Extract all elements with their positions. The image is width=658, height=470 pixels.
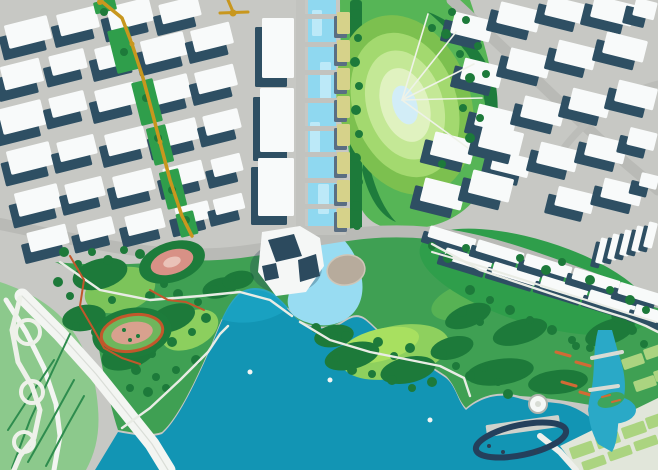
skywalk-node [230, 10, 237, 17]
canal-rowhouses [337, 124, 350, 146]
pocket-park-tree [100, 8, 108, 16]
canal-rowhouses [337, 180, 350, 202]
park-tree [131, 365, 141, 375]
east-park-tree [462, 244, 470, 252]
east-park-tree [457, 307, 467, 317]
park-tree [135, 249, 145, 259]
great-lawn-tree [465, 133, 475, 143]
great-lawn-tree [441, 29, 451, 39]
canal-exhibition-halls [262, 18, 294, 78]
park-tree [228, 274, 236, 282]
canal-ripple [320, 62, 331, 100]
park-tree [59, 247, 69, 257]
park-tree [194, 298, 202, 306]
canal-ripple [318, 184, 329, 214]
east-park-tree [586, 344, 594, 352]
headland-tree [437, 349, 447, 359]
canal-rowhouses [337, 208, 350, 228]
headland-tree [494, 378, 502, 386]
great-lawn-tree [459, 104, 467, 112]
canal-rowhouses [337, 12, 350, 34]
park-tree [143, 387, 153, 397]
park-tree [172, 366, 180, 374]
headland-tree [347, 365, 357, 375]
canal-bank-tree [353, 222, 361, 230]
great-lawn-tree [456, 50, 464, 58]
great-lawn-tree [448, 8, 456, 16]
boat [428, 418, 433, 423]
headland-tree [373, 337, 383, 347]
great-lawn-tree [482, 70, 490, 78]
canal-bank-tree [351, 9, 361, 19]
east-park-tree [627, 325, 637, 335]
cultural-center-roof [262, 263, 279, 281]
canal-bank-tree [354, 34, 362, 42]
east-park-tree [486, 296, 494, 304]
headland-tree [332, 354, 340, 362]
east-park-tree [558, 258, 566, 266]
park-tree [66, 292, 74, 300]
headland-tree [368, 370, 376, 378]
headland-tree [387, 375, 397, 385]
headland-tree [341, 331, 351, 341]
canal-bank-tree [350, 57, 360, 67]
masterplan-svg [0, 0, 658, 470]
canal-rowhouses [337, 68, 350, 90]
skywalk-node [130, 42, 135, 47]
boat [328, 378, 333, 383]
headland-tree [405, 343, 415, 353]
east-park-tree [465, 285, 475, 295]
east-park-tree [476, 318, 484, 326]
headland-tree [503, 389, 513, 399]
canal-ripple [312, 10, 322, 36]
canal-bank-tree [355, 82, 363, 90]
canal-bank-tree [351, 153, 361, 163]
park-tree [72, 322, 80, 330]
pier-pavilion-dot [487, 444, 491, 448]
headland-tree [427, 377, 437, 387]
great-lawn-tree [438, 160, 446, 168]
headland-tree [480, 364, 488, 372]
headland-tree [330, 332, 338, 340]
east-park-tree [585, 275, 595, 285]
east-park-tree [526, 316, 534, 324]
east-park-tree [505, 305, 515, 315]
great-lawn-tree [476, 114, 484, 122]
east-park-tree [642, 306, 650, 314]
east-park-tree [625, 295, 635, 305]
headland-tree [408, 384, 416, 392]
pier-pavilion-dot [549, 444, 553, 448]
park-tree [88, 248, 96, 256]
east-park-tree [606, 286, 614, 294]
canal-bank-tree [351, 105, 361, 115]
east-park-tree [640, 340, 648, 348]
canal-bank-tree [355, 178, 363, 186]
garden-oval-tree [122, 328, 126, 332]
canal-rowhouses [337, 152, 350, 174]
canal-rowhouses [337, 40, 350, 62]
east-park-tree [572, 342, 580, 350]
east-park-tree [541, 265, 551, 275]
park-tree [108, 296, 116, 304]
great-lawn-tree [428, 24, 436, 32]
headland-tree [452, 362, 460, 370]
park-tree [152, 373, 160, 381]
park-tree [103, 255, 113, 265]
garden-oval-tree [136, 334, 140, 338]
pocket-park-tree [120, 48, 128, 56]
canal-exhibition-halls [258, 158, 294, 216]
park-tree [126, 384, 134, 392]
canal-bank-tree [355, 130, 363, 138]
great-lawn-tree [465, 73, 475, 83]
garden-oval-tree [128, 338, 132, 342]
canal-rowhouses [337, 96, 350, 118]
east-park-tree [516, 254, 524, 262]
park-tree [201, 313, 211, 323]
pier-pavilion-dot [534, 450, 538, 454]
pier-pavilion-dot [501, 450, 505, 454]
east-park-tree [547, 325, 557, 335]
great-lawn-tree [474, 42, 482, 50]
park-tree [53, 277, 63, 287]
park-tree [188, 328, 196, 336]
canal-bank-tree [351, 201, 361, 211]
boat [248, 370, 253, 375]
headland-tree [465, 371, 475, 381]
skywalk-node [158, 140, 163, 145]
great-lawn-tree [462, 16, 470, 24]
park-tree [120, 246, 128, 254]
canal-exhibition-halls [260, 88, 294, 152]
masterplan-rendering [0, 0, 658, 470]
round-pavilion-core [535, 401, 541, 407]
